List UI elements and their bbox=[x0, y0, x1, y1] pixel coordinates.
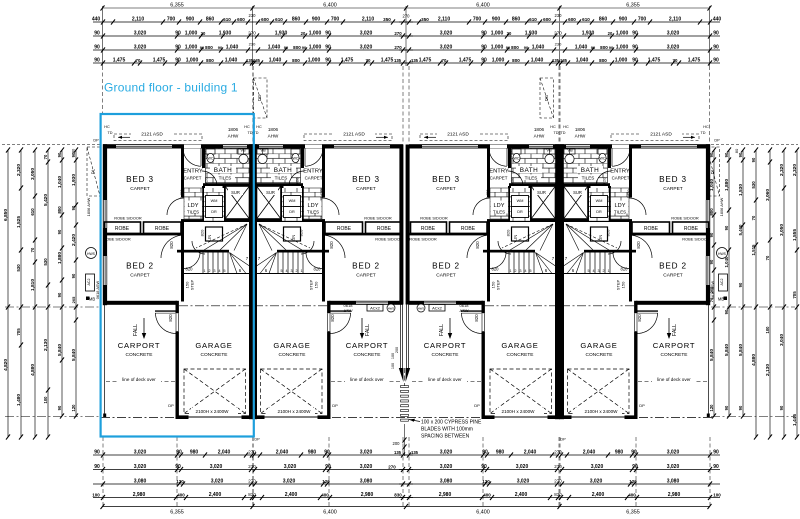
svg-text:3,020: 3,020 bbox=[667, 450, 680, 456]
svg-text:1,930: 1,930 bbox=[582, 31, 595, 37]
svg-text:90: 90 bbox=[481, 45, 487, 51]
svg-text:BED 3: BED 3 bbox=[432, 175, 460, 184]
svg-text:BLADES WITH 100mm: BLADES WITH 100mm bbox=[421, 427, 473, 433]
svg-text:TD: TD bbox=[700, 131, 705, 135]
svg-text:200: 200 bbox=[395, 347, 399, 353]
svg-text:CARPORT: CARPORT bbox=[346, 341, 389, 350]
svg-text:90: 90 bbox=[632, 45, 638, 51]
svg-text:DP: DP bbox=[93, 139, 99, 143]
svg-text:CONCRETE: CONCRETE bbox=[507, 352, 534, 358]
svg-text:90: 90 bbox=[175, 31, 181, 37]
svg-text:3,020: 3,020 bbox=[667, 31, 680, 37]
svg-text:LDY: LDY bbox=[494, 203, 505, 209]
svg-text:820: 820 bbox=[492, 267, 500, 272]
svg-text:135: 135 bbox=[552, 58, 560, 63]
svg-text:900: 900 bbox=[619, 17, 628, 23]
svg-text:70: 70 bbox=[751, 215, 756, 220]
svg-text:3,080: 3,080 bbox=[440, 479, 453, 485]
svg-text:CARPORT: CARPORT bbox=[424, 341, 467, 350]
svg-text:WC: WC bbox=[600, 157, 606, 161]
svg-text:1,000: 1,000 bbox=[186, 58, 199, 64]
svg-text:6,355: 6,355 bbox=[170, 510, 184, 516]
svg-text:705: 705 bbox=[16, 328, 21, 336]
svg-text:HC: HC bbox=[244, 125, 250, 129]
svg-text:HWS: HWS bbox=[718, 252, 727, 256]
svg-text:2,110: 2,110 bbox=[362, 17, 374, 23]
svg-text:820: 820 bbox=[200, 229, 205, 236]
svg-text:5: 5 bbox=[224, 269, 226, 273]
svg-text:ACx2: ACx2 bbox=[432, 306, 443, 311]
svg-text:2,040: 2,040 bbox=[218, 450, 231, 456]
svg-text:2,130: 2,130 bbox=[43, 339, 49, 351]
svg-text:90: 90 bbox=[591, 45, 596, 50]
svg-text:3,080: 3,080 bbox=[134, 479, 147, 485]
svg-text:610: 610 bbox=[529, 17, 537, 22]
svg-text:90: 90 bbox=[94, 450, 100, 456]
svg-text:90: 90 bbox=[524, 45, 529, 50]
svg-text:90: 90 bbox=[724, 225, 729, 230]
svg-text:DR: DR bbox=[517, 210, 523, 214]
svg-text:ROBE: ROBE bbox=[115, 226, 130, 232]
svg-text:90: 90 bbox=[609, 45, 614, 50]
svg-text:90: 90 bbox=[325, 45, 331, 51]
svg-text:2: 2 bbox=[515, 269, 517, 273]
svg-text:GARAGE: GARAGE bbox=[501, 341, 538, 350]
svg-text:70: 70 bbox=[30, 247, 35, 252]
svg-text:20: 20 bbox=[608, 31, 613, 36]
svg-text:5,840: 5,840 bbox=[71, 349, 77, 361]
svg-text:90: 90 bbox=[325, 58, 331, 64]
svg-text:BED 3: BED 3 bbox=[659, 175, 687, 184]
svg-text:ASW: ASW bbox=[343, 308, 352, 313]
svg-text:3,080: 3,080 bbox=[360, 479, 373, 485]
svg-text:3,020: 3,020 bbox=[516, 464, 529, 470]
svg-text:2,110: 2,110 bbox=[438, 17, 450, 23]
svg-text:AHW: AHW bbox=[575, 134, 586, 139]
svg-text:5,840: 5,840 bbox=[57, 344, 63, 356]
svg-text:90: 90 bbox=[713, 45, 719, 51]
svg-text:ROBE S/DOOR: ROBE S/DOOR bbox=[420, 216, 448, 221]
svg-text:DP: DP bbox=[557, 153, 563, 157]
svg-text:440: 440 bbox=[713, 17, 722, 23]
svg-text:CARPET: CARPET bbox=[490, 176, 508, 181]
svg-text:3,040: 3,040 bbox=[779, 334, 785, 346]
svg-text:1,445: 1,445 bbox=[792, 414, 798, 426]
svg-text:820: 820 bbox=[475, 241, 480, 249]
svg-text:3,020: 3,020 bbox=[440, 31, 453, 37]
svg-text:230: 230 bbox=[249, 42, 256, 47]
svg-text:1,475: 1,475 bbox=[113, 58, 126, 64]
svg-text:3: 3 bbox=[214, 269, 216, 273]
svg-text:1,515: 1,515 bbox=[751, 244, 756, 256]
svg-text:3,020: 3,020 bbox=[440, 450, 453, 456]
svg-text:90: 90 bbox=[481, 464, 487, 470]
svg-text:6,400: 6,400 bbox=[476, 510, 490, 516]
svg-text:2,110: 2,110 bbox=[669, 17, 681, 23]
svg-text:HWS: HWS bbox=[388, 307, 395, 311]
svg-text:2,320: 2,320 bbox=[779, 164, 785, 176]
svg-text:VB: VB bbox=[567, 148, 573, 153]
svg-text:4: 4 bbox=[286, 269, 288, 273]
svg-text:860: 860 bbox=[206, 17, 215, 23]
svg-text:TILES: TILES bbox=[582, 175, 595, 180]
svg-text:CONCRETE: CONCRETE bbox=[432, 352, 459, 358]
svg-text:800: 800 bbox=[599, 58, 607, 63]
svg-text:1: 1 bbox=[204, 269, 206, 273]
svg-text:STEP: STEP bbox=[616, 279, 621, 290]
svg-text:80: 80 bbox=[71, 148, 76, 153]
svg-text:350: 350 bbox=[383, 17, 391, 22]
svg-text:1,475: 1,475 bbox=[688, 58, 701, 64]
svg-text:90: 90 bbox=[751, 157, 756, 162]
svg-text:DL: DL bbox=[710, 168, 715, 174]
svg-text:90: 90 bbox=[632, 58, 638, 64]
svg-text:STEP: STEP bbox=[496, 279, 501, 290]
svg-text:2,320: 2,320 bbox=[792, 164, 798, 176]
svg-text:700: 700 bbox=[473, 17, 482, 23]
svg-text:230: 230 bbox=[555, 13, 563, 18]
svg-text:CARPET: CARPET bbox=[130, 273, 150, 279]
svg-text:20: 20 bbox=[507, 31, 512, 36]
svg-text:HC: HC bbox=[550, 125, 556, 129]
svg-text:100: 100 bbox=[391, 353, 395, 359]
svg-text:STEP: STEP bbox=[309, 279, 314, 290]
svg-text:DL: DL bbox=[91, 168, 96, 174]
svg-text:1,040: 1,040 bbox=[226, 45, 239, 51]
svg-text:2,130: 2,130 bbox=[765, 364, 771, 376]
svg-text:4,880: 4,880 bbox=[30, 364, 36, 376]
svg-text:90: 90 bbox=[481, 31, 487, 37]
svg-text:720: 720 bbox=[510, 177, 515, 184]
svg-text:800: 800 bbox=[292, 58, 300, 63]
svg-text:2: 2 bbox=[603, 269, 605, 273]
svg-text:CARPET: CARPET bbox=[612, 176, 630, 181]
svg-text:980: 980 bbox=[190, 450, 199, 456]
svg-text:3: 3 bbox=[291, 269, 293, 273]
svg-text:20: 20 bbox=[301, 31, 306, 36]
svg-text:1,000: 1,000 bbox=[615, 58, 628, 64]
svg-text:1,000: 1,000 bbox=[492, 58, 505, 64]
svg-text:2100H x 2400W: 2100H x 2400W bbox=[502, 409, 536, 414]
svg-text:100: 100 bbox=[92, 493, 100, 498]
svg-text:1,475: 1,475 bbox=[341, 58, 354, 64]
svg-text:3,020: 3,020 bbox=[360, 450, 373, 456]
svg-text:3,020: 3,020 bbox=[134, 31, 147, 37]
svg-text:90: 90 bbox=[713, 31, 719, 37]
svg-text:CARPET: CARPET bbox=[130, 186, 150, 192]
svg-text:440: 440 bbox=[92, 17, 101, 23]
svg-text:80: 80 bbox=[734, 148, 739, 153]
svg-text:530: 530 bbox=[16, 264, 21, 272]
svg-text:20: 20 bbox=[201, 31, 206, 36]
svg-text:820: 820 bbox=[330, 314, 335, 322]
svg-text:1806: 1806 bbox=[575, 127, 586, 132]
svg-text:70: 70 bbox=[43, 154, 48, 159]
svg-text:1,040: 1,040 bbox=[532, 45, 545, 51]
svg-text:720: 720 bbox=[602, 177, 607, 184]
svg-text:1,040: 1,040 bbox=[576, 58, 589, 64]
svg-text:TILES: TILES bbox=[525, 175, 538, 180]
svg-text:TILES: TILES bbox=[275, 175, 288, 180]
svg-text:LDY: LDY bbox=[188, 203, 199, 209]
svg-text:TILES: TILES bbox=[219, 175, 232, 180]
svg-text:AC2: AC2 bbox=[87, 279, 91, 286]
svg-text:FALL: FALL bbox=[672, 324, 678, 336]
svg-text:3,050: 3,050 bbox=[30, 168, 36, 180]
svg-text:DP: DP bbox=[168, 403, 174, 408]
svg-text:270: 270 bbox=[394, 31, 402, 36]
svg-text:1,480: 1,480 bbox=[16, 394, 22, 406]
svg-text:1,475: 1,475 bbox=[419, 58, 432, 64]
svg-text:400: 400 bbox=[483, 493, 491, 498]
svg-text:610: 610 bbox=[275, 17, 283, 22]
svg-text:ROBE S/DOOR: ROBE S/DOOR bbox=[375, 237, 403, 242]
svg-text:1,000: 1,000 bbox=[309, 45, 322, 51]
svg-text:1,000: 1,000 bbox=[491, 31, 504, 37]
svg-text:270: 270 bbox=[388, 465, 396, 470]
svg-text:1,000: 1,000 bbox=[309, 31, 322, 37]
svg-text:610: 610 bbox=[223, 17, 231, 22]
svg-text:820: 820 bbox=[637, 314, 642, 322]
svg-text:1,530: 1,530 bbox=[738, 184, 744, 196]
svg-text:ROBE S/DOOR: ROBE S/DOOR bbox=[409, 237, 437, 242]
svg-text:ENTRY: ENTRY bbox=[183, 169, 203, 175]
svg-text:3,020: 3,020 bbox=[591, 464, 604, 470]
svg-text:1,930: 1,930 bbox=[219, 31, 232, 37]
svg-text:2100H x 2400W: 2100H x 2400W bbox=[278, 409, 312, 414]
svg-text:1806 AHW: 1806 AHW bbox=[719, 197, 724, 216]
svg-text:TD: TD bbox=[107, 131, 112, 135]
svg-text:TILES: TILES bbox=[614, 210, 626, 215]
svg-text:90: 90 bbox=[325, 464, 331, 470]
svg-text:VB: VB bbox=[260, 148, 266, 153]
svg-text:90: 90 bbox=[724, 309, 729, 314]
svg-text:3: 3 bbox=[598, 269, 600, 273]
svg-text:820: 820 bbox=[169, 241, 174, 249]
svg-text:BED 2: BED 2 bbox=[432, 262, 460, 271]
svg-text:3,020: 3,020 bbox=[590, 479, 603, 485]
svg-text:FALL: FALL bbox=[439, 324, 445, 336]
svg-text:800: 800 bbox=[600, 45, 608, 50]
svg-text:CARPET: CARPET bbox=[356, 273, 376, 279]
svg-text:1,930: 1,930 bbox=[525, 31, 538, 37]
svg-text:150: 150 bbox=[314, 281, 319, 288]
svg-text:800: 800 bbox=[205, 45, 213, 50]
svg-text:90: 90 bbox=[632, 31, 638, 37]
svg-text:1,040: 1,040 bbox=[225, 58, 238, 64]
svg-text:135: 135 bbox=[394, 58, 402, 63]
svg-text:6,400: 6,400 bbox=[323, 510, 337, 516]
svg-text:3,020: 3,020 bbox=[440, 45, 453, 51]
svg-text:600: 600 bbox=[543, 17, 551, 22]
svg-text:WC: WC bbox=[293, 157, 299, 161]
svg-text:1420: 1420 bbox=[179, 189, 184, 199]
svg-text:2,040: 2,040 bbox=[276, 450, 289, 456]
svg-text:5: 5 bbox=[588, 269, 590, 273]
svg-text:DP: DP bbox=[714, 139, 720, 143]
svg-text:120: 120 bbox=[71, 404, 76, 412]
svg-text:CONCRETE: CONCRETE bbox=[279, 352, 306, 358]
svg-text:6,355: 6,355 bbox=[626, 510, 640, 516]
svg-text:205: 205 bbox=[71, 296, 76, 303]
svg-text:BED 2: BED 2 bbox=[352, 262, 380, 271]
svg-text:270: 270 bbox=[248, 479, 256, 484]
svg-text:1,000: 1,000 bbox=[491, 45, 504, 51]
svg-text:90: 90 bbox=[175, 58, 181, 64]
svg-text:2,980: 2,980 bbox=[361, 492, 374, 498]
svg-text:3,020: 3,020 bbox=[134, 464, 147, 470]
svg-text:90: 90 bbox=[325, 31, 331, 37]
svg-text:700: 700 bbox=[331, 17, 340, 23]
svg-text:ROBE S/DOOR: ROBE S/DOOR bbox=[364, 216, 392, 221]
svg-text:WC: WC bbox=[514, 157, 520, 161]
svg-text:120: 120 bbox=[176, 479, 184, 484]
svg-text:1: 1 bbox=[608, 269, 610, 273]
svg-text:3,020: 3,020 bbox=[440, 464, 453, 470]
svg-text:DR: DR bbox=[289, 210, 295, 214]
svg-text:900: 900 bbox=[312, 17, 321, 23]
svg-text:ROBE: ROBE bbox=[337, 226, 352, 232]
svg-text:line of deck over: line of deck over bbox=[350, 377, 384, 382]
svg-text:800: 800 bbox=[511, 45, 519, 50]
svg-text:1,475: 1,475 bbox=[153, 58, 166, 64]
svg-text:LIN: LIN bbox=[207, 235, 212, 242]
svg-text:900: 900 bbox=[492, 17, 501, 23]
svg-text:700: 700 bbox=[638, 17, 647, 23]
svg-text:SPACING BETWEEN: SPACING BETWEEN bbox=[421, 434, 470, 440]
svg-text:1,040: 1,040 bbox=[57, 176, 63, 188]
svg-text:ROBE S/DOOR: ROBE S/DOOR bbox=[671, 216, 699, 221]
svg-text:400: 400 bbox=[177, 493, 185, 498]
svg-text:CONCRETE: CONCRETE bbox=[126, 352, 153, 358]
svg-text:705: 705 bbox=[792, 291, 797, 299]
svg-text:BATH: BATH bbox=[274, 167, 293, 174]
svg-text:2,110: 2,110 bbox=[132, 17, 144, 23]
svg-text:ROBE: ROBE bbox=[377, 226, 392, 232]
svg-text:820: 820 bbox=[329, 241, 334, 249]
svg-text:120: 120 bbox=[482, 479, 490, 484]
svg-text:0618 ASW: 0618 ASW bbox=[710, 280, 715, 299]
svg-text:HC: HC bbox=[703, 125, 709, 129]
svg-text:1,475: 1,475 bbox=[459, 58, 472, 64]
svg-text:90: 90 bbox=[724, 405, 729, 410]
svg-text:820: 820 bbox=[168, 314, 173, 322]
svg-text:70: 70 bbox=[673, 58, 678, 63]
svg-text:DG: DG bbox=[544, 95, 549, 101]
svg-text:2,400: 2,400 bbox=[209, 492, 222, 498]
svg-text:600: 600 bbox=[261, 17, 269, 22]
svg-text:135: 135 bbox=[411, 450, 419, 455]
svg-text:6,400: 6,400 bbox=[476, 2, 490, 8]
svg-text:MB: MB bbox=[89, 297, 95, 302]
svg-text:90: 90 bbox=[94, 58, 100, 64]
svg-text:ROBE: ROBE bbox=[684, 226, 699, 232]
svg-text:6,400: 6,400 bbox=[323, 2, 337, 8]
svg-text:ENTRY: ENTRY bbox=[610, 169, 630, 175]
svg-text:90: 90 bbox=[481, 58, 487, 64]
svg-text:line of deck over: line of deck over bbox=[122, 377, 156, 382]
svg-text:2100H x 2400W: 2100H x 2400W bbox=[585, 409, 619, 414]
svg-text:3,020: 3,020 bbox=[283, 479, 296, 485]
svg-text:SUR: SUR bbox=[266, 190, 275, 195]
svg-text:1,475: 1,475 bbox=[648, 58, 661, 64]
svg-text:2,980: 2,980 bbox=[133, 492, 146, 498]
svg-text:135: 135 bbox=[411, 58, 419, 63]
svg-text:3,020: 3,020 bbox=[667, 45, 680, 51]
svg-text:200: 200 bbox=[393, 441, 401, 446]
svg-text:MB: MB bbox=[718, 297, 724, 302]
svg-text:2100H x 2400W: 2100H x 2400W bbox=[196, 409, 230, 414]
svg-text:100: 100 bbox=[43, 396, 48, 404]
svg-text:DP: DP bbox=[254, 438, 260, 442]
svg-text:HC: HC bbox=[256, 125, 262, 129]
svg-text:GARAGE: GARAGE bbox=[195, 341, 232, 350]
svg-text:800: 800 bbox=[512, 58, 520, 63]
svg-text:1806: 1806 bbox=[534, 127, 545, 132]
svg-text:3,020: 3,020 bbox=[134, 45, 147, 51]
svg-text:CARPORT: CARPORT bbox=[118, 341, 161, 350]
svg-text:860: 860 bbox=[292, 17, 301, 23]
svg-text:2,980: 2,980 bbox=[439, 492, 452, 498]
svg-text:WC: WC bbox=[208, 157, 214, 161]
svg-text:230: 230 bbox=[555, 42, 562, 47]
svg-text:3,060: 3,060 bbox=[765, 189, 771, 201]
svg-text:1,930: 1,930 bbox=[275, 31, 288, 37]
svg-text:FALL: FALL bbox=[133, 324, 139, 336]
svg-text:3,020: 3,020 bbox=[360, 45, 373, 51]
svg-text:SUR: SUR bbox=[573, 190, 582, 195]
svg-text:HWS: HWS bbox=[87, 252, 96, 256]
svg-text:120: 120 bbox=[709, 404, 714, 412]
svg-text:90: 90 bbox=[713, 450, 719, 456]
svg-text:CARPET: CARPET bbox=[663, 273, 683, 279]
svg-text:BED 3: BED 3 bbox=[126, 175, 154, 184]
svg-text:2121 ASD: 2121 ASD bbox=[447, 131, 469, 137]
svg-text:150: 150 bbox=[621, 281, 626, 288]
svg-text:LDY: LDY bbox=[615, 203, 626, 209]
svg-text:WM: WM bbox=[289, 199, 296, 203]
svg-text:2,400: 2,400 bbox=[592, 492, 605, 498]
svg-text:CARPET: CARPET bbox=[663, 186, 683, 192]
svg-text:820: 820 bbox=[299, 229, 304, 236]
svg-text:90: 90 bbox=[724, 152, 729, 157]
svg-text:3,050: 3,050 bbox=[779, 224, 785, 236]
svg-text:90: 90 bbox=[200, 45, 205, 50]
svg-text:820: 820 bbox=[314, 267, 322, 272]
svg-text:90: 90 bbox=[506, 45, 511, 50]
svg-text:2,980: 2,980 bbox=[668, 492, 681, 498]
svg-text:270: 270 bbox=[554, 31, 562, 36]
svg-text:4: 4 bbox=[525, 269, 527, 273]
svg-text:DG: DG bbox=[257, 95, 262, 101]
svg-text:HC: HC bbox=[563, 125, 569, 129]
svg-text:0618 ASW: 0618 ASW bbox=[95, 280, 100, 299]
svg-text:100 x 200 CYPRESS PINE: 100 x 200 CYPRESS PINE bbox=[421, 420, 482, 426]
svg-text:3,020: 3,020 bbox=[360, 31, 373, 37]
svg-text:1,000: 1,000 bbox=[616, 45, 629, 51]
svg-text:2,040: 2,040 bbox=[524, 450, 537, 456]
svg-text:line of deck over: line of deck over bbox=[428, 377, 462, 382]
svg-text:980: 980 bbox=[308, 450, 317, 456]
svg-text:4: 4 bbox=[593, 269, 595, 273]
svg-text:270: 270 bbox=[554, 479, 562, 484]
svg-text:90: 90 bbox=[57, 405, 62, 410]
svg-text:WM: WM bbox=[596, 199, 603, 203]
svg-text:830: 830 bbox=[554, 492, 562, 497]
svg-text:1420: 1420 bbox=[626, 189, 631, 199]
svg-text:DP: DP bbox=[560, 438, 566, 442]
svg-text:BED 3: BED 3 bbox=[352, 175, 380, 184]
